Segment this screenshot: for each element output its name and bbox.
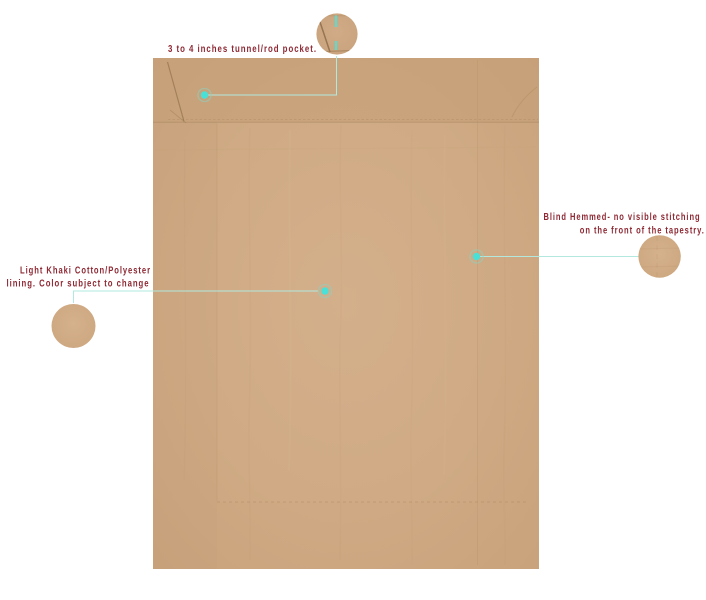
svg-text:on the front of the tapestry.: on the front of the tapestry. — [580, 225, 705, 237]
svg-text:3 to 4 inches tunnel/rod pocke: 3 to 4 inches tunnel/rod pocket. — [168, 43, 317, 55]
svg-text:Blind Hemmed- no visible stitc: Blind Hemmed- no visible stitching — [544, 211, 701, 223]
svg-text:Light Khaki Cotton/Polyester: Light Khaki Cotton/Polyester — [20, 265, 151, 277]
svg-text:lining. Color subject to chang: lining. Color subject to change — [7, 278, 150, 290]
